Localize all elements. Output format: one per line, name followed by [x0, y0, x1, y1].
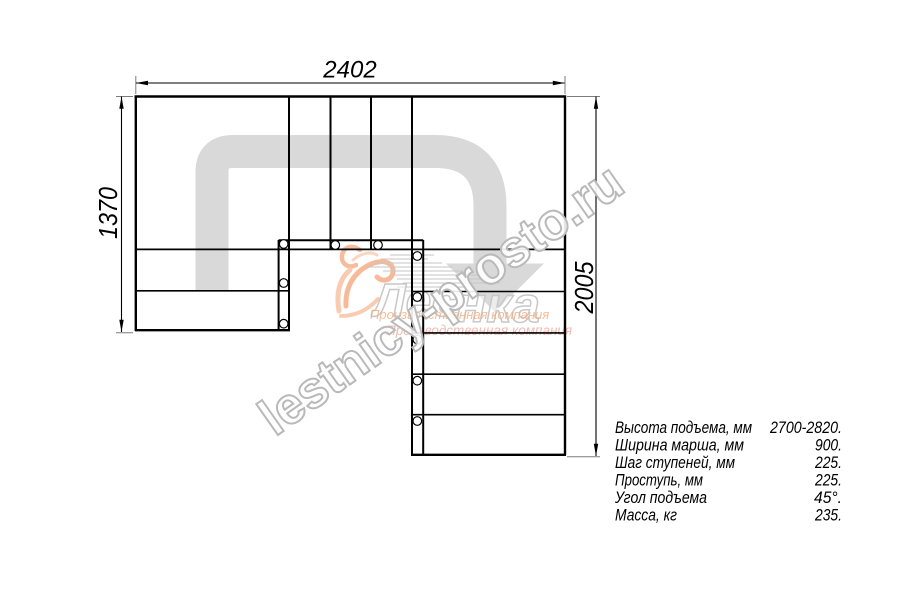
svg-text:900.: 900.: [815, 436, 842, 455]
svg-text:225.: 225.: [814, 453, 842, 472]
svg-text:Угол подъема: Угол подъема: [614, 488, 707, 507]
svg-text:2700-2820.: 2700-2820.: [769, 418, 842, 437]
svg-text:2402: 2402: [322, 57, 376, 84]
svg-text:45°.: 45°.: [814, 488, 842, 507]
svg-text:225.: 225.: [814, 471, 842, 490]
svg-text:Ширина марша, мм: Ширина марша, мм: [615, 436, 744, 455]
svg-text:Высота подъема, мм: Высота подъема, мм: [615, 418, 752, 437]
svg-text:Масса, кг: Масса, кг: [615, 506, 677, 525]
svg-text:Проступь, мм: Проступь, мм: [615, 471, 703, 490]
svg-text:Шаг ступеней, мм: Шаг ступеней, мм: [615, 453, 735, 472]
svg-text:2005: 2005: [569, 261, 599, 314]
svg-text:235.: 235.: [814, 506, 842, 525]
svg-text:1370: 1370: [93, 187, 123, 239]
